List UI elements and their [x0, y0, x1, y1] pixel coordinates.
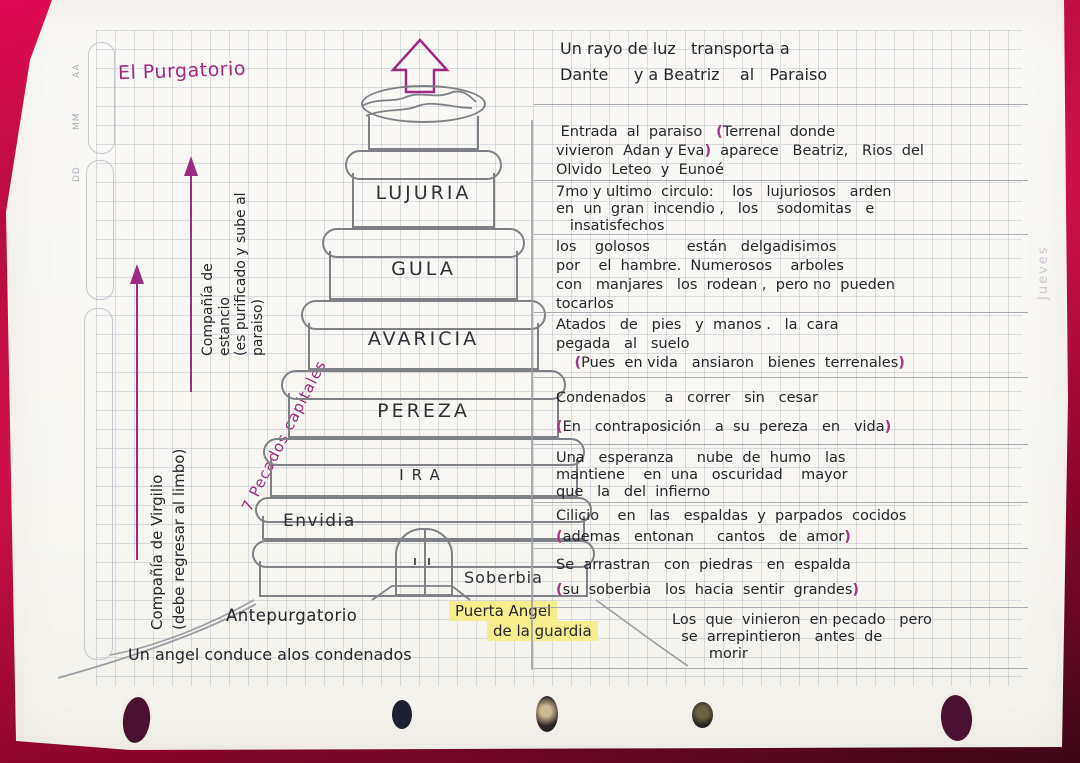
note-line: pegada al suelo	[556, 335, 1018, 354]
margin-date-box	[88, 42, 115, 154]
tower-tier	[361, 85, 486, 150]
tower-tier-label-pereza: PEREZA	[281, 400, 566, 422]
note-line: Se arrastran con piedras en espalda	[556, 553, 1018, 578]
magenta-paren: (	[556, 419, 563, 435]
tower-tier: LUJURIA	[345, 150, 502, 228]
magenta-paren: )	[898, 355, 905, 371]
note-envidia: Cilicio en las espaldas y parpados cocid…	[556, 506, 1018, 548]
door-knob	[428, 558, 430, 565]
note-line: Atados de pies y manos . la cara	[556, 316, 1018, 335]
note-divider	[534, 668, 1028, 669]
magenta-paren: )	[704, 143, 711, 159]
note-gula: los golosos están delgadisimospor el ham…	[556, 238, 1018, 314]
tower-tier: AVARICIA	[301, 300, 546, 370]
note-line: Dante y a Beatriz al Paraiso	[560, 62, 1018, 88]
purgatory-tower-diagram: LUJURIAGULAAVARICIAPEREZAIRAEnvidiaSober…	[252, 85, 595, 597]
punch-hole	[692, 702, 713, 728]
tier-wall	[368, 116, 479, 150]
note-antepurgatorio: Los que vinieron en pecado pero se arrep…	[556, 612, 1018, 663]
tower-tier: PEREZA	[281, 370, 566, 438]
gate-label-highlighted: Puerta Angel	[449, 601, 557, 621]
photographed-notebook-page: { "colors":{"ink":"#26262c","pencil":"#8…	[0, 0, 1080, 763]
note-ray-of-light: Un rayo de luz transporta aDante y a Bea…	[560, 36, 1018, 88]
tower-tier: IRA	[263, 438, 585, 497]
note-line: los golosos están delgadisimos	[556, 238, 1018, 257]
angel-guide-note: Un angel conduce alos condenados	[128, 645, 412, 664]
note-line: (ademas entonan cantos de amor)	[556, 527, 1018, 548]
tower-tier-label-avaricia: AVARICIA	[301, 328, 546, 350]
note-line: en un gran incendio , los sodomitas e	[556, 201, 1018, 218]
note-divider	[534, 548, 1028, 549]
margin-letter-aa: AA	[72, 63, 82, 78]
note-line: por el hambre. Numerosos arboles	[556, 257, 1018, 276]
magenta-paren: (	[556, 582, 563, 598]
antepurgatorio-label: Antepurgatorio	[226, 606, 357, 625]
margin-letter-mm: MM	[72, 112, 82, 130]
virgil-company-text: Compañía de Virgilio	[146, 290, 168, 630]
punch-hole	[392, 700, 412, 729]
notes-column-rule	[531, 120, 533, 670]
note-divider	[534, 180, 1028, 181]
estacio-line1: Compañía de	[200, 114, 217, 356]
door-knob	[414, 558, 416, 565]
punch-hole	[536, 696, 558, 732]
magenta-paren: (	[574, 355, 581, 371]
margin-box-long	[84, 308, 113, 660]
note-line: 7mo y ultimo circulo: los lujuriosos ard…	[556, 184, 1018, 201]
note-avaricia: Atados de pies y manos . la carapegada a…	[556, 316, 1018, 373]
note-line: con manjares los rodean , pero no pueden	[556, 276, 1018, 295]
note-line: Olvido Leteo y Eunoé	[556, 161, 1018, 180]
note-divider	[534, 312, 1028, 313]
virgil-company-label: Compañía de Virgilio (debe regresar al l…	[146, 290, 190, 630]
note-line: insatisfechos	[556, 218, 1018, 235]
edge-faint-note: Jueves	[1036, 160, 1051, 300]
estacio-line2: estancio	[217, 114, 234, 356]
virgil-company-sub: (debe regresar al limbo)	[168, 290, 190, 630]
page-title: El Purgatorio	[118, 58, 247, 84]
note-pereza: Condenados a correr sin cesar(En contrap…	[556, 384, 1018, 442]
note-divider	[534, 607, 1028, 608]
magenta-paren: (	[716, 124, 723, 140]
note-line: se arrepintieron antes de	[672, 629, 1018, 646]
note-line: Cilicio en las espaldas y parpados cocid…	[556, 506, 1018, 527]
note-divider	[534, 104, 1028, 105]
margin-date-box	[86, 160, 114, 300]
note-soberbia: Se arrastran con piedras en espalda(su s…	[556, 553, 1018, 603]
note-divider	[534, 502, 1028, 503]
purgatory-gate-door	[395, 528, 453, 596]
note-line: Una esperanza nube de humo las	[556, 450, 1018, 467]
magenta-paren: )	[844, 529, 851, 545]
note-line: Un rayo de luz transporta a	[560, 36, 1018, 62]
note-line: mantiene en una oscuridad mayor	[556, 467, 1018, 484]
note-line: Condenados a correr sin cesar	[556, 384, 1018, 413]
tower-tier-label-lujuria: LUJURIA	[345, 182, 502, 204]
note-divider	[534, 444, 1028, 445]
note-lujuria: 7mo y ultimo circulo: los lujuriosos ard…	[556, 184, 1018, 235]
note-line: Los que vinieron en pecado pero	[672, 612, 1018, 629]
note-line: morir	[672, 646, 1018, 663]
estacio-sub1: (es purificado y sube al	[233, 114, 250, 356]
margin-letter-dd: DD	[72, 166, 82, 182]
note-divider	[534, 377, 1028, 378]
door-center-line	[424, 530, 426, 594]
note-divider	[534, 234, 1028, 235]
note-line: Entrada al paraiso (Terrenal donde	[556, 123, 1018, 142]
magenta-paren: )	[885, 419, 892, 435]
magenta-paren: (	[556, 529, 563, 545]
tower-tier-label-gula: GULA	[322, 258, 525, 280]
note-paradise-entrance: Entrada al paraiso (Terrenal dondevivier…	[556, 123, 1018, 180]
note-line: (Pues en vida ansiaron bienes terrenales…	[556, 354, 1018, 373]
magenta-paren: )	[852, 582, 859, 598]
note-ira: Una esperanza nube de humo lasmantiene e…	[556, 450, 1018, 501]
tower-tier-label-ira: IRA	[263, 466, 585, 484]
tower-tier: GULA	[322, 228, 525, 300]
note-line: que la del infierno	[556, 484, 1018, 501]
note-line: (En contraposición a su pereza en vida)	[556, 413, 1018, 442]
note-line: vivieron Adan y Eva) aparece Beatriz, Ri…	[556, 142, 1018, 161]
note-line: (su soberbia los hacia sentir grandes)	[556, 578, 1018, 603]
